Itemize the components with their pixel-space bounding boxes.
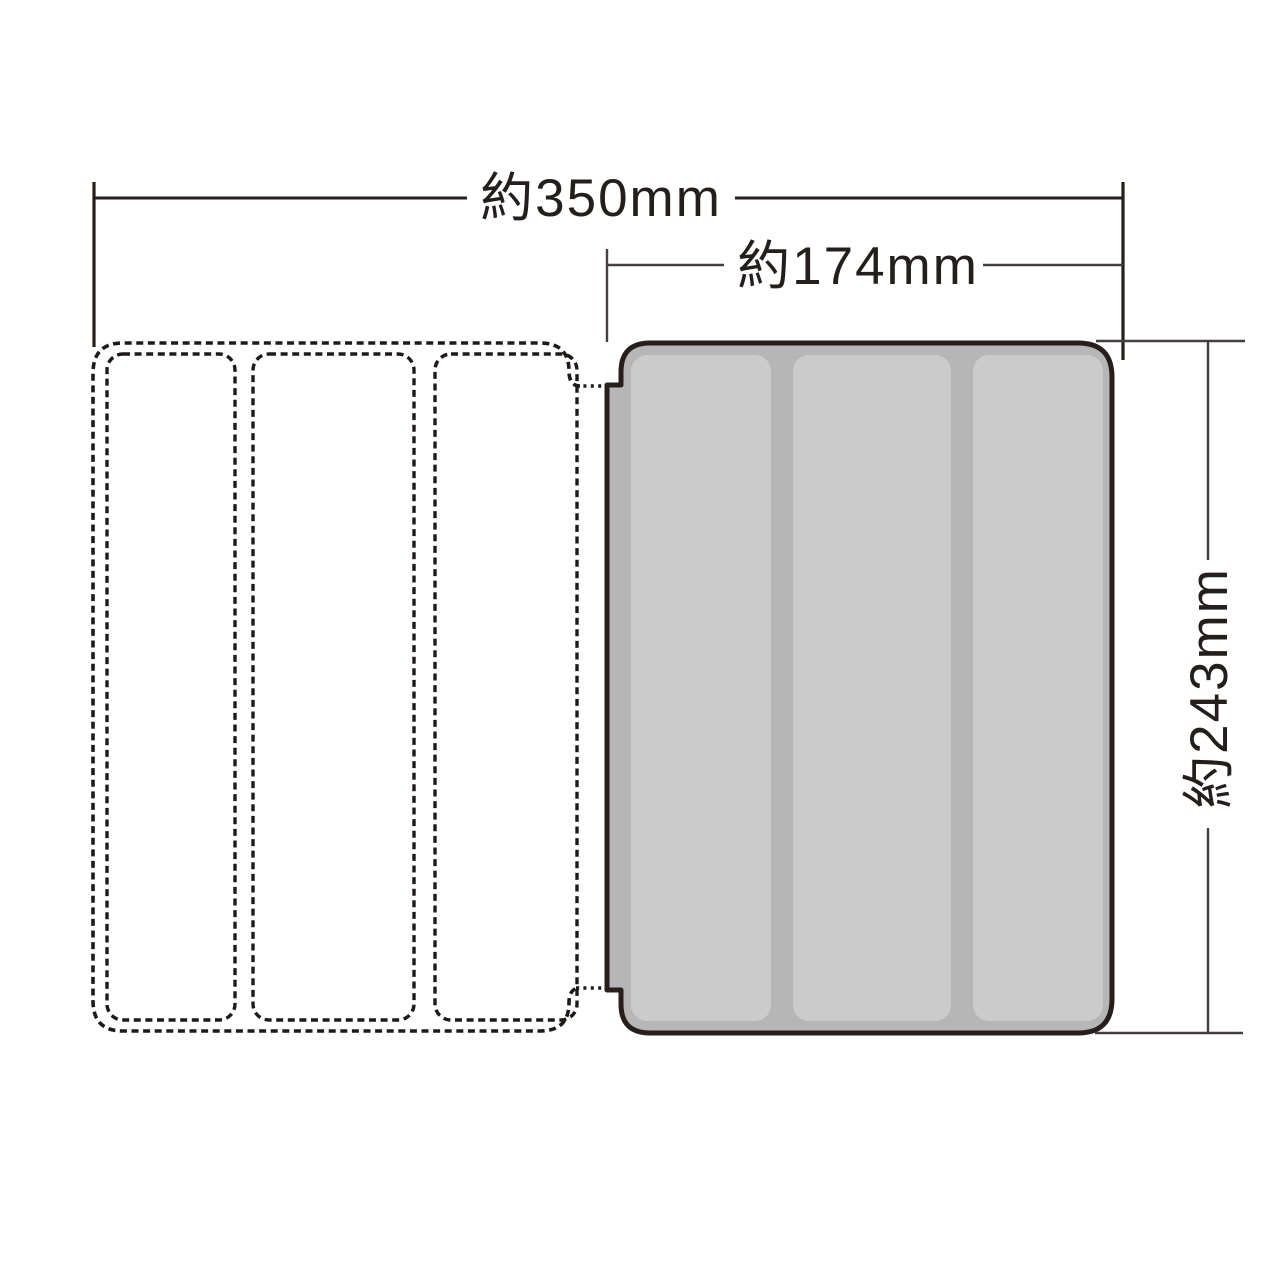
dim-case-height-label: 約243mm <box>1180 567 1239 809</box>
cover-panel-3 <box>435 354 577 1020</box>
dim-case-width-label: 約174mm <box>737 237 979 296</box>
tablet-case-closed <box>607 343 1112 1033</box>
dim-total-width-label: 約350mm <box>480 169 722 228</box>
dimension-case-width: 約174mm <box>607 237 1123 342</box>
dimension-diagram-svg: 約350mm 約174mm 約243mm <box>0 0 1280 1280</box>
tablet-case-dimension-diagram: 約350mm 約174mm 約243mm <box>0 0 1280 1280</box>
cover-panel-2 <box>253 354 414 1020</box>
case-panel-1 <box>631 355 771 1021</box>
case-panel-3 <box>973 355 1103 1021</box>
case-panel-2 <box>793 355 951 1021</box>
cover-outer-edge <box>93 343 580 1031</box>
smart-cover-open-dashed <box>93 343 608 1031</box>
cover-panel-1 <box>107 354 235 1020</box>
dimension-case-height: 約243mm <box>1095 341 1245 1033</box>
